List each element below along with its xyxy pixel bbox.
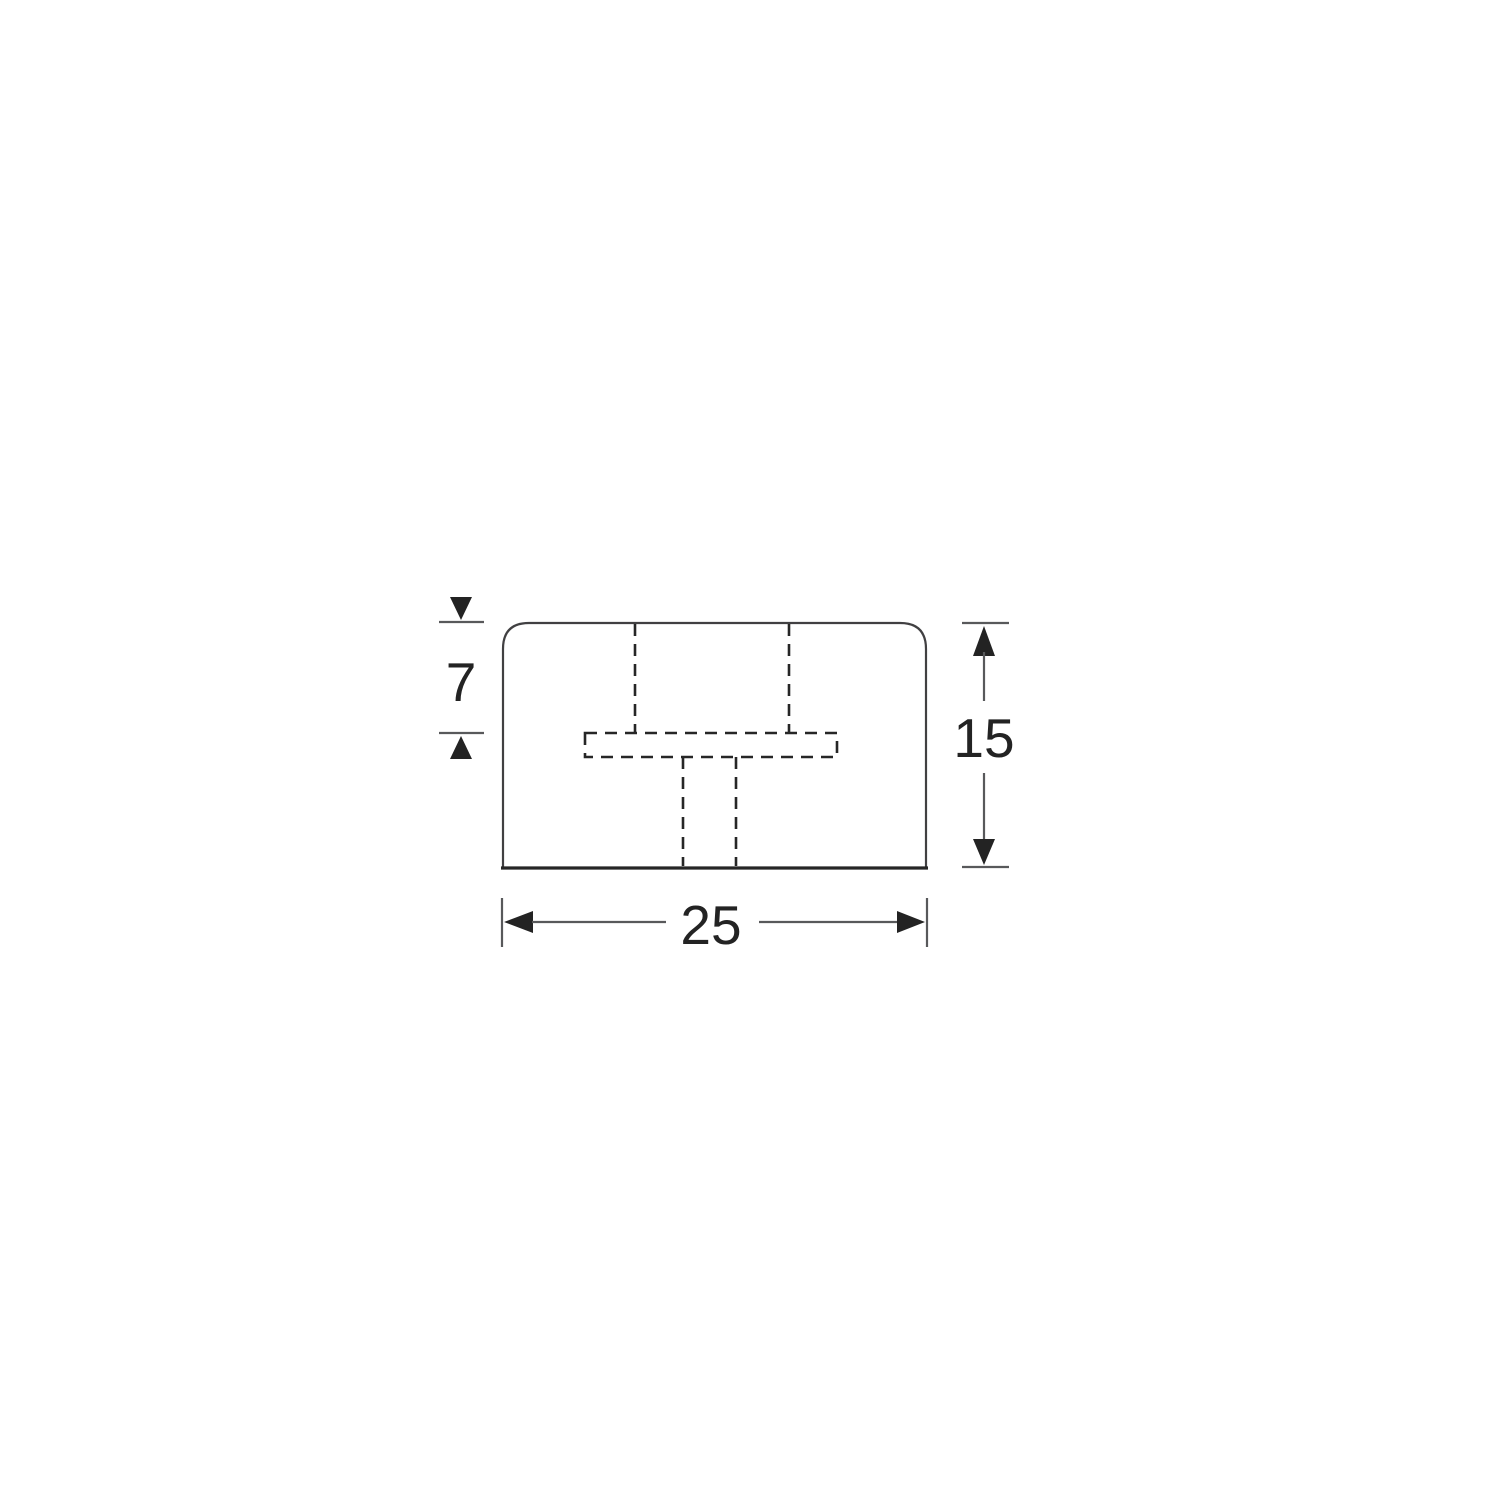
dimension-inset-depth: 7 — [439, 597, 484, 759]
inset-depth-up-arrow-icon — [450, 736, 472, 759]
hidden-washer-outline — [585, 733, 837, 757]
height-down-arrow-icon — [973, 839, 995, 865]
height-label: 15 — [953, 707, 1014, 769]
dimension-width: 25 — [502, 894, 927, 956]
inset-depth-down-arrow-icon — [450, 597, 472, 620]
drawing-canvas: 7 15 25 — [0, 0, 1500, 1500]
dimension-height: 15 — [953, 623, 1014, 867]
width-right-arrow-icon — [897, 911, 925, 933]
technical-drawing: 7 15 25 — [0, 0, 1500, 1500]
inset-depth-label: 7 — [446, 651, 477, 713]
part-outline — [503, 623, 926, 868]
height-up-arrow-icon — [973, 626, 995, 656]
width-label: 25 — [680, 894, 741, 956]
width-left-arrow-icon — [504, 911, 533, 933]
